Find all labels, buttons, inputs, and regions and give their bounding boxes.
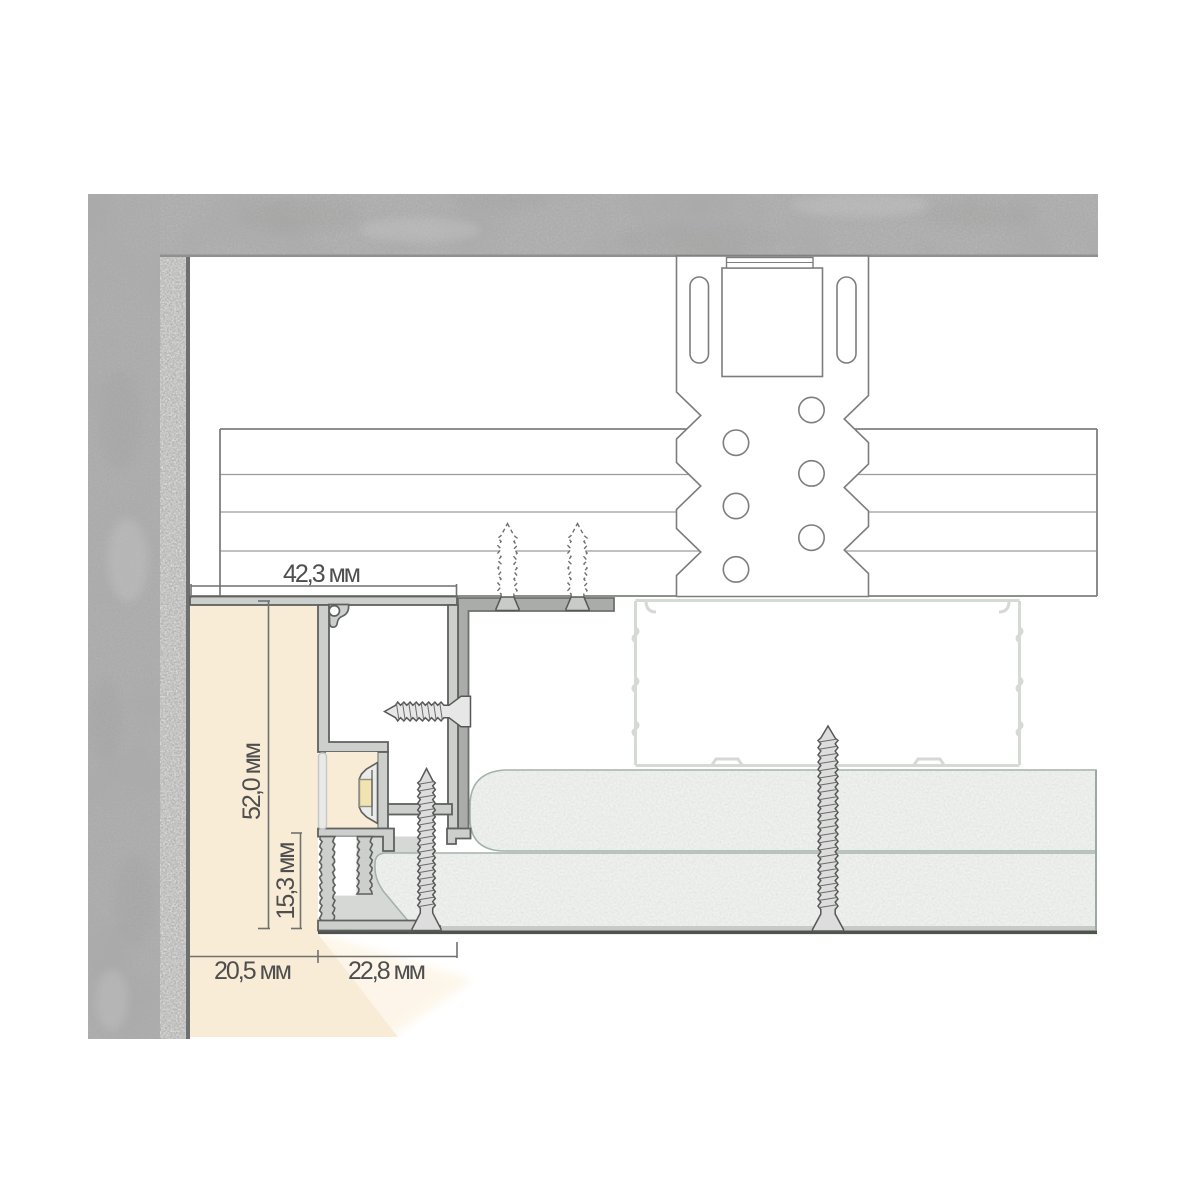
svg-text:15,3 мм: 15,3 мм [272,843,300,920]
svg-text:20,5 мм: 20,5 мм [214,957,291,985]
svg-text:42,3 мм: 42,3 мм [283,560,360,588]
svg-text:22,8 мм: 22,8 мм [348,957,425,985]
svg-text:52,0 мм: 52,0 мм [238,743,266,820]
